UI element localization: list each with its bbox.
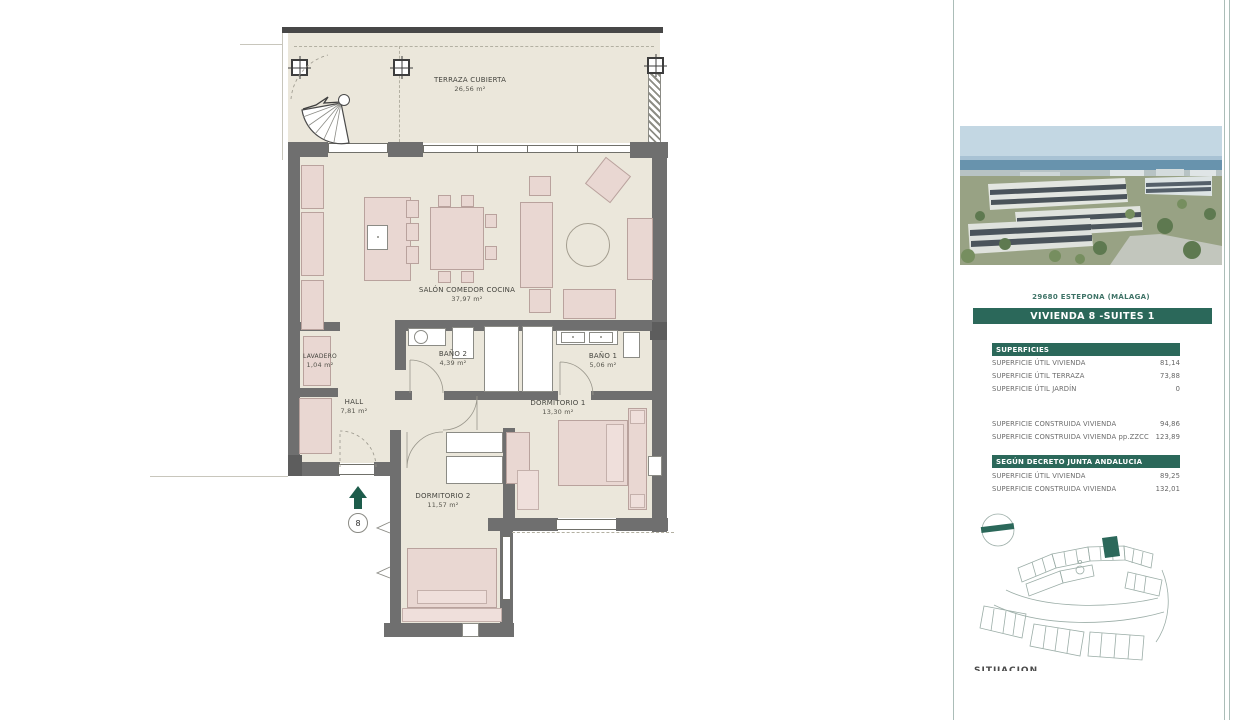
site-plan-art	[976, 510, 1180, 666]
plan-linework	[0, 0, 945, 720]
floor-plan: 8 TERRAZA CUBIERTA 26,56 m² SALÓN COMEDO…	[0, 0, 945, 720]
table-row: SUPERFICIE ÚTIL VIVIENDA 81,14	[992, 357, 1180, 369]
highlighted-building	[1102, 536, 1120, 558]
table-row: SUPERFICIE ÚTIL TERRAZA 73,88	[992, 370, 1180, 382]
footer-clipped-title: SITUACIÓN	[974, 666, 1064, 671]
sidebar-border-right-outer	[1229, 0, 1230, 720]
brochure-page: 8 TERRAZA CUBIERTA 26,56 m² SALÓN COMEDO…	[0, 0, 1240, 720]
sidebar-border-right	[1224, 0, 1225, 720]
table-row: SUPERFICIE ÚTIL VIVIENDA 89,25	[992, 470, 1180, 482]
table-row: SUPERFICIE CONSTRUIDA VIVIENDA 94,86	[992, 418, 1180, 430]
north-bar	[981, 523, 1014, 533]
site-plan	[976, 510, 1180, 666]
decreto-header: SEGÚN DECRETO JUNTA ANDALUCIA	[992, 455, 1180, 468]
address-line: 29680 ESTEPONA (MÁLAGA)	[960, 293, 1222, 301]
superficies-header: SUPERFICIES	[992, 343, 1180, 356]
unit-banner: VIVIENDA 8 -SUITES 1	[973, 308, 1212, 324]
table-row: SUPERFICIE ÚTIL JARDÍN 0	[992, 383, 1180, 395]
table-row: SUPERFICIE CONSTRUIDA VIVIENDA 132,01	[992, 483, 1180, 495]
development-aerial-photo	[960, 126, 1222, 265]
table-row: SUPERFICIE CONSTRUIDA VIVIENDA pp.ZZCC 1…	[992, 431, 1180, 443]
sidebar-border-left	[953, 0, 954, 720]
aerial-photo-art	[960, 126, 1222, 265]
